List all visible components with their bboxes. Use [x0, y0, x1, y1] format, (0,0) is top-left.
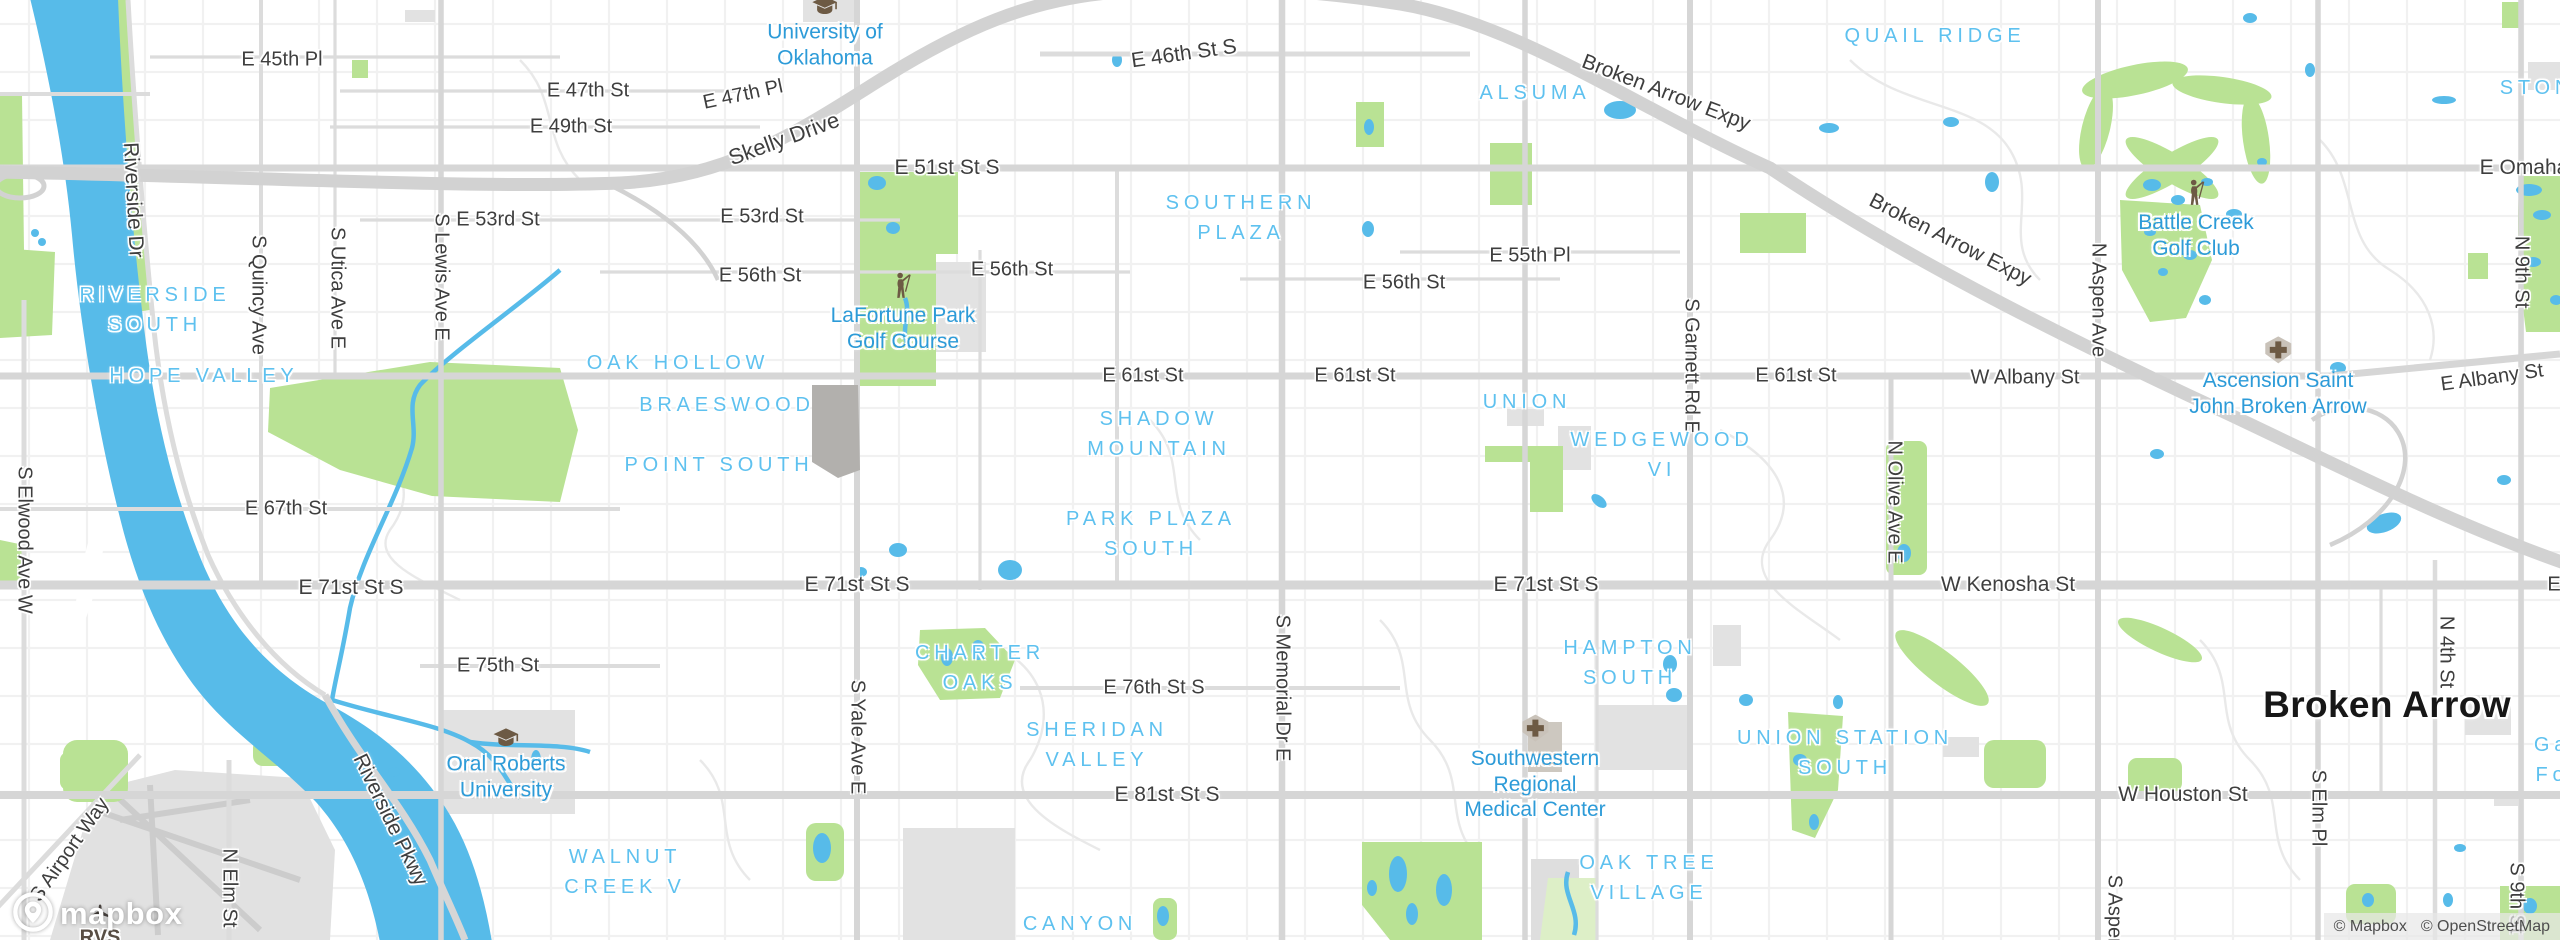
street-label: N 4th St: [2435, 616, 2458, 688]
map-canvas[interactable]: E 45th PlE 47th StE 47th PlE 49th StSkel…: [0, 0, 2560, 940]
golfer-icon: [831, 272, 976, 300]
poi-label: SouthwesternRegionalMedical Center: [1464, 713, 1605, 823]
street-label: S Airport Way: [26, 794, 115, 907]
street-label: E 46th St S: [1130, 35, 1239, 74]
poi-label: University ofOklahoma: [767, 0, 883, 71]
street-label: S Lewis Ave E: [430, 213, 453, 340]
neighborhood-label: ALSUMA: [1479, 78, 1590, 108]
street-label: E 61st St: [1755, 365, 1836, 388]
street-label: E 55th Pl: [1489, 245, 1570, 268]
neighborhood-label: QUAIL RIDGE: [1845, 21, 2026, 51]
neighborhood-label: HAMPTONSOUTH: [1563, 633, 1696, 693]
street-label: W Kenosha St: [1941, 573, 2075, 597]
golfer-icon: [2138, 179, 2254, 207]
street-label: E 47th St: [547, 80, 629, 103]
hospital-icon: [1464, 713, 1605, 743]
poi-label: Oral RobertsUniversity: [446, 727, 565, 802]
school-icon: [446, 727, 565, 748]
street-label: E 56th St: [971, 259, 1053, 282]
street-label: E 61st St: [1314, 365, 1395, 388]
street-label: S Utica Ave E: [326, 227, 349, 349]
street-label: S Yale Ave E: [846, 680, 869, 795]
neighborhood-label: WEDGEWOODVI: [1570, 425, 1753, 485]
street-label: S Aspen: [2103, 875, 2126, 940]
street-label: E 49th St: [530, 116, 612, 139]
street-label: S Elm Pl: [2307, 770, 2330, 847]
street-label: E 47th Pl: [701, 75, 785, 114]
street-label: S Elwood Ave W: [13, 466, 36, 613]
neighborhood-label: OAK HOLLOW: [587, 348, 769, 378]
poi-label: LaFortune ParkGolf Course: [831, 272, 976, 354]
street-label: E 75th St: [457, 655, 539, 678]
street-label: S Garnett Rd E: [1680, 298, 1703, 434]
street-label: E 71st St S: [804, 573, 909, 597]
street-label: W Houston St: [2118, 783, 2248, 807]
street-label: Riverside Pkwy: [348, 750, 432, 890]
neighborhood-label: SOUTHERNPLAZA: [1166, 188, 1317, 248]
neighborhood-label: CANYON: [1023, 909, 1137, 939]
street-label: E: [2547, 574, 2560, 597]
neighborhood-label: UNION: [1483, 387, 1571, 417]
school-icon: [767, 0, 883, 16]
map-labels: E 45th PlE 47th StE 47th PlE 49th StSkel…: [0, 0, 2560, 940]
neighborhood-label: STONE: [2500, 73, 2560, 103]
neighborhood-label: POINT SOUTH: [624, 450, 813, 480]
street-label: E 51st St S: [894, 156, 999, 180]
street-label: S Memorial Dr E: [1271, 615, 1294, 762]
poi-label: Ascension SaintJohn Broken Arrow: [2189, 335, 2366, 419]
street-label: N 9th St: [2510, 236, 2533, 308]
street-label: N Elm St: [218, 849, 241, 928]
street-label: E 56th St: [1363, 272, 1445, 295]
attribution-osm-link[interactable]: © OpenStreetMap: [2421, 918, 2550, 936]
neighborhood-label: OAK TREEVILLAGE: [1579, 848, 1718, 908]
hospital-icon: [2189, 335, 2366, 365]
neighborhood-label: RIVERSIDESOUTH: [79, 280, 230, 340]
neighborhood-label: SHADOWMOUNTAIN: [1087, 404, 1231, 464]
attribution-mapbox-link[interactable]: © Mapbox: [2334, 918, 2407, 936]
neighborhood-label: GaFo: [2534, 730, 2560, 790]
street-label: E 53rd St: [456, 209, 539, 232]
mapbox-logo-text: mapbox: [60, 896, 183, 932]
street-label: E 56th St: [719, 265, 801, 288]
street-label: E 71st St S: [298, 576, 403, 600]
neighborhood-label: PARK PLAZASOUTH: [1066, 504, 1236, 564]
street-label: N Olive Ave E: [1883, 440, 1906, 563]
street-label: E Omaha: [2480, 156, 2560, 180]
street-label: E 53rd St: [720, 206, 803, 229]
mapbox-pin-icon: [12, 891, 54, 933]
street-label: E 61st St: [1102, 365, 1183, 388]
street-label: Broken Arrow Expy: [1865, 189, 2035, 291]
neighborhood-label: SHERIDANVALLEY: [1026, 715, 1168, 775]
street-label: W Albany St: [1971, 367, 2080, 390]
street-label: E 71st St S: [1493, 573, 1598, 597]
street-label: Skelly Drive: [725, 107, 843, 171]
neighborhood-label: UNION STATIONSOUTH: [1737, 723, 1953, 783]
neighborhood-label: CHARTEROAKS: [915, 638, 1045, 698]
neighborhood-label: WALNUTCREEK V: [564, 842, 685, 902]
street-label: E 45th Pl: [241, 49, 322, 72]
street-label: E 81st St S: [1114, 783, 1219, 807]
street-label: E 76th St S: [1103, 677, 1204, 700]
street-label: E Albany St: [2439, 359, 2545, 396]
street-label: E 67th St: [245, 498, 327, 521]
street-label: Riverside Dr: [118, 142, 148, 259]
mapbox-logo[interactable]: mapbox: [12, 891, 183, 936]
street-label: Broken Arrow Expy: [1578, 50, 1753, 136]
neighborhood-label: BRAESWOOD: [639, 390, 814, 420]
attribution-bar: © Mapbox © OpenStreetMap: [2324, 913, 2560, 940]
neighborhood-label: HOPE VALLEY: [109, 361, 298, 391]
city-label: Broken Arrow: [2263, 684, 2511, 726]
street-label: N Aspen Ave: [2087, 243, 2110, 357]
poi-label: Battle CreekGolf Club: [2138, 179, 2254, 261]
street-label: S Quincy Ave: [247, 235, 270, 355]
